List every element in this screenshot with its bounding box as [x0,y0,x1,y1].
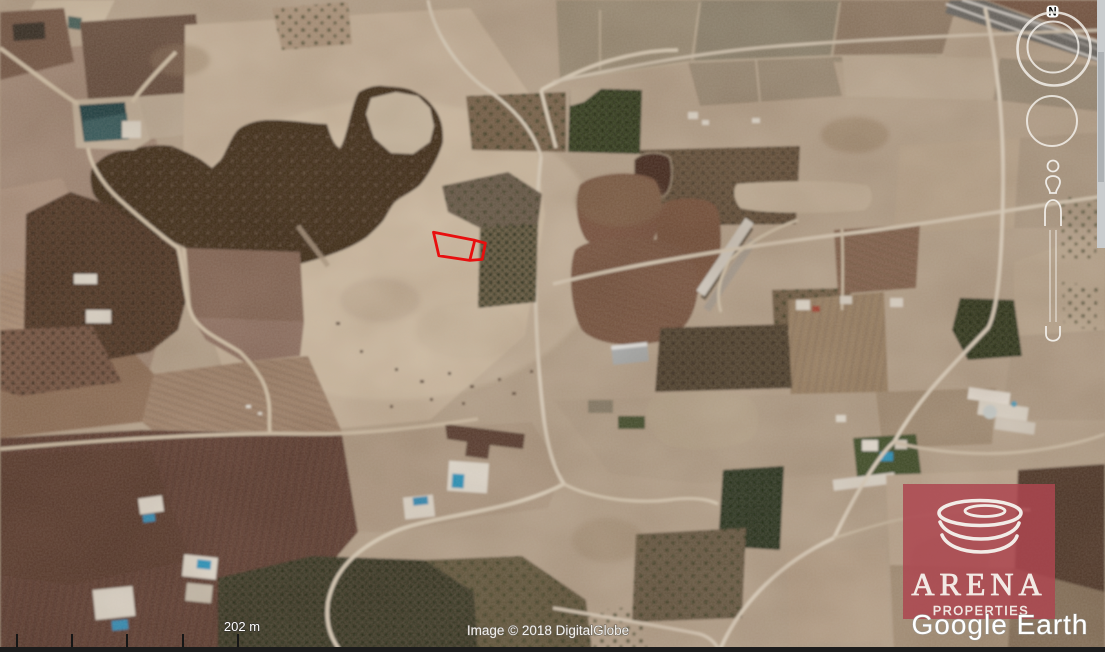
svg-text:Google Earth: Google Earth [912,609,1089,640]
svg-text:ARENA: ARENA [911,566,1046,602]
svg-text:Image © 2018 DigitalGlobe: Image © 2018 DigitalGlobe [467,623,629,638]
svg-text:202 m: 202 m [224,619,260,634]
